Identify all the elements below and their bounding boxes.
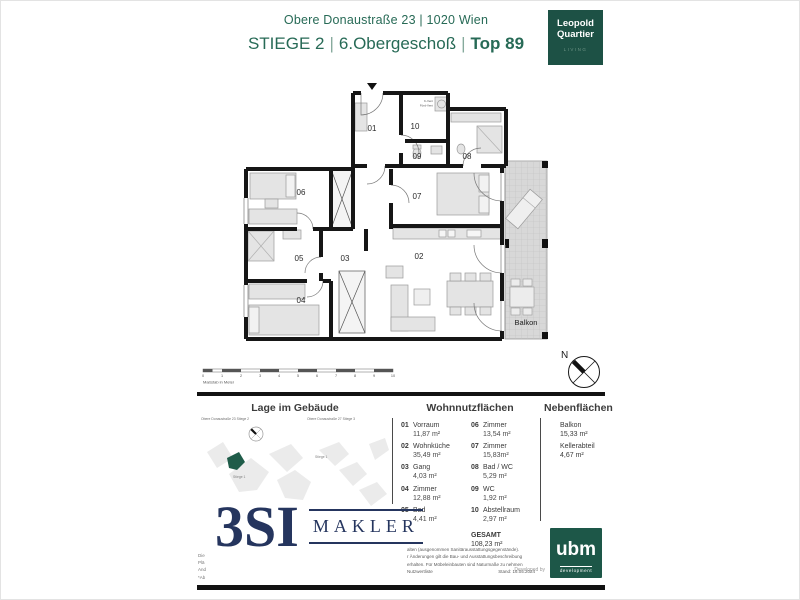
room-number: 04 [401, 485, 413, 494]
building-label-left: Obere Donaustraße 23 Stiege 2 [201, 417, 249, 421]
scale-tick: 1 [221, 374, 223, 378]
balcony: Balkon [505, 161, 548, 339]
balkon-label: Balkon [515, 318, 538, 327]
disclaimer-line: Nutzwertliste [407, 568, 433, 575]
logo-line2: Quartier [548, 30, 603, 41]
top-number: Top 89 [471, 34, 525, 53]
scale-tick: 7 [335, 374, 337, 378]
disclaimer-fragment: Plä [198, 559, 206, 566]
area-row: Balkon15,33 m² [560, 421, 595, 439]
scale-tick: 9 [373, 374, 375, 378]
room-label-08: 08 [463, 152, 472, 161]
flyer-page: Obere Donaustraße 23 | 1020 Wien STIEGE … [0, 0, 800, 600]
bottom-bar [197, 585, 605, 590]
room-name: WC [483, 486, 495, 493]
areas-column-2: 06Zimmer13,54 m² 07Zimmer15,83m² 08Bad /… [471, 421, 541, 549]
room-name: Zimmer [483, 443, 507, 450]
area-row: 02Wohnküche35,49 m² [401, 442, 469, 460]
section-divider [197, 392, 605, 396]
entrance-arrow-icon [367, 83, 377, 90]
vent-labels: K-Vent Förd-Vent [420, 99, 433, 108]
header: Obere Donaustraße 23 | 1020 Wien STIEGE … [206, 13, 566, 54]
wardrobes [331, 169, 365, 333]
room-name: Balkon [560, 421, 595, 430]
area-row: 07Zimmer15,83m² [471, 442, 541, 460]
3si-wordmark: 3SI [215, 499, 299, 554]
room-number: 07 [471, 442, 483, 451]
location-section-title: Lage im Gebäude [197, 402, 393, 414]
room-name: Kellerabteil [560, 442, 595, 451]
vertical-rule [392, 418, 393, 504]
room-label-09: 09 [413, 152, 422, 161]
vent-label-2: Förd-Vent [420, 104, 433, 108]
room-number: 02 [401, 442, 413, 451]
address-line: Obere Donaustraße 23 | 1020 Wien [206, 13, 566, 27]
compass-icon: N [557, 347, 605, 393]
room-label-06: 06 [297, 188, 306, 197]
room-area: 1,92 m² [483, 494, 541, 503]
stiege1-label-a: Stiege 1 [233, 475, 246, 479]
room-number: 08 [471, 463, 483, 472]
ubm-logo: ubm development [550, 528, 602, 578]
scale-tick: 2 [240, 374, 242, 378]
room-number: 06 [471, 421, 483, 430]
room-number: 10 [471, 506, 483, 515]
area-row: 10Abstellraum2,97 m² [471, 506, 541, 524]
room-name: Wohnküche [413, 443, 450, 450]
developed-by-label: Developed by [491, 567, 545, 573]
area-row: 03Gang4,03 m² [401, 463, 469, 481]
room-name: Gang [413, 464, 430, 471]
area-row: 01Vorraum11,87 m² [401, 421, 469, 439]
room-area: 15,83m² [483, 451, 541, 460]
building-label-right: Obere Donaustraße 27 Stiege 3 [307, 417, 355, 421]
area-row: 06Zimmer13,54 m² [471, 421, 541, 439]
room-label-04: 04 [297, 296, 306, 305]
logo-sub: LIVING [548, 47, 603, 52]
makler-wordmark: MAKLER [309, 509, 423, 544]
room-area: 4,67 m² [560, 451, 595, 460]
floor-label: 6.Obergeschoß [339, 34, 456, 53]
site-compass-icon [249, 427, 263, 441]
scale-tick: 0 [202, 374, 204, 378]
scale-bar: 0 1 2 3 4 5 6 7 8 9 10 Maßstab in Meter [199, 367, 414, 389]
room-area: 4,03 m² [413, 472, 469, 481]
leopold-quartier-logo: Leopold Quartier LIVING [548, 10, 603, 65]
unit-title: STIEGE 2|6.Obergeschoß|Top 89 [206, 34, 566, 54]
room-name: Zimmer [483, 422, 507, 429]
room-label-01: 01 [368, 124, 377, 133]
room-label-07: 07 [413, 192, 422, 201]
disclaimer-left: Die Plä And *Ab [198, 552, 206, 581]
room-name: Bad / WC [483, 464, 513, 471]
floorplan-drawing: Balkon [239, 81, 549, 341]
3si-makler-logo: 3SI MAKLER [215, 499, 423, 554]
room-name: Abstellraum [483, 507, 520, 514]
room-label-10: 10 [411, 122, 420, 131]
room-area: 5,29 m² [483, 472, 541, 481]
disclaimer-fragment: *Ab [198, 574, 206, 581]
room-area: 2,97 m² [483, 515, 541, 524]
room-area: 11,87 m² [413, 430, 469, 439]
scale-tick: 3 [259, 374, 261, 378]
room-number: 01 [401, 421, 413, 430]
living-areas-title: Wohnnutzflächen [399, 402, 541, 414]
scale-label: Maßstab in Meter [203, 380, 235, 385]
room-area: 15,33 m² [560, 430, 595, 439]
scale-tick: 10 [391, 374, 395, 378]
stiege-label: STIEGE 2 [248, 34, 325, 53]
vent-label-1: K-Vent [424, 99, 433, 103]
room-label-03: 03 [341, 254, 350, 263]
room-number: 03 [401, 463, 413, 472]
room-name: Zimmer [413, 486, 437, 493]
disclaimer-fragment: And [198, 566, 206, 573]
room-label-05: 05 [295, 254, 304, 263]
disclaimer-fragment: Die [198, 552, 206, 559]
scale-tick: 6 [316, 374, 318, 378]
secondary-areas-list: Balkon15,33 m² Kellerabteil4,67 m² [560, 421, 595, 463]
room-number: 09 [471, 485, 483, 494]
separator: | [324, 34, 338, 53]
stiege1-label-b: Stiege 1 [315, 455, 328, 459]
scale-tick: 5 [297, 374, 299, 378]
scale-tick: 4 [278, 374, 280, 378]
room-name: Vorraum [413, 422, 439, 429]
separator: | [456, 34, 470, 53]
ubm-wordmark: ubm [550, 540, 602, 559]
north-label: N [561, 350, 568, 361]
disclaimer-line: alten (ausgenommen Sanitärausstattungsge… [407, 546, 535, 553]
total-label: GESAMT [471, 531, 541, 540]
area-row: Kellerabteil4,67 m² [560, 442, 595, 460]
area-row: 08Bad / WC5,29 m² [471, 463, 541, 481]
secondary-areas-title: Nebenflächen [544, 402, 606, 414]
ubm-sub: development [560, 566, 592, 573]
room-area: 13,54 m² [483, 430, 541, 439]
area-row: 09WC1,92 m² [471, 485, 541, 503]
room-label-02: 02 [415, 252, 424, 261]
room-area: 35,49 m² [413, 451, 469, 460]
disclaimer-line: r Änderungen gilt die Bau- und Ausstattu… [407, 553, 535, 560]
scale-tick: 8 [354, 374, 356, 378]
